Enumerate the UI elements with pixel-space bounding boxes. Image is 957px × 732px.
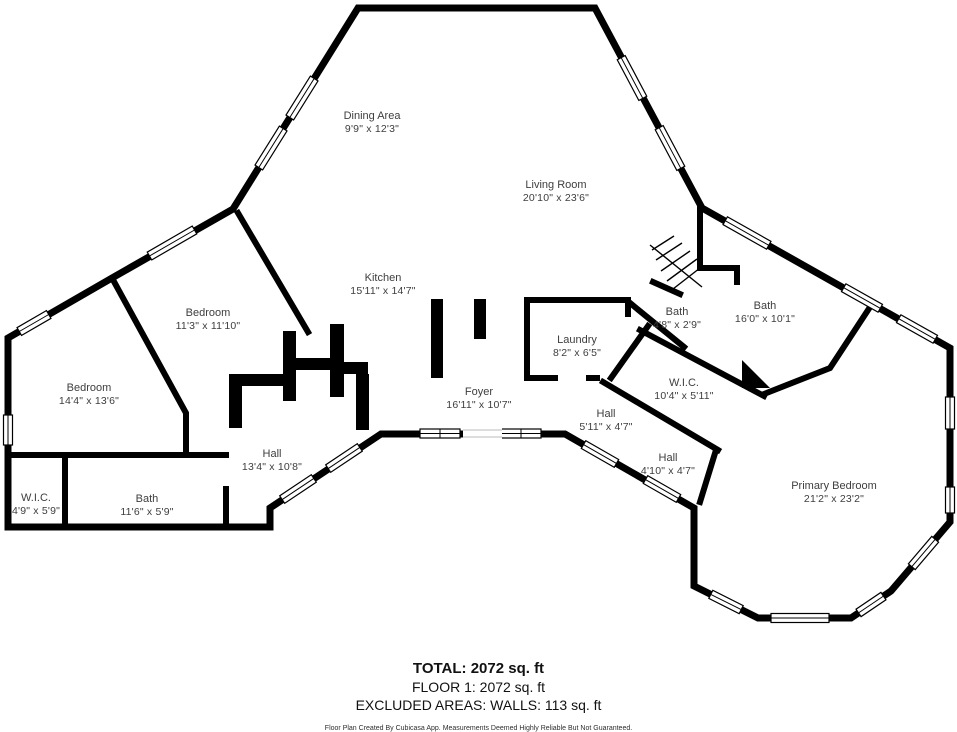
window-symbol xyxy=(581,441,618,468)
window-symbol xyxy=(501,429,541,438)
window-symbol xyxy=(946,397,955,429)
window-symbol xyxy=(655,126,685,171)
window-symbol xyxy=(4,415,13,445)
window-symbol xyxy=(643,476,680,503)
window-symbol xyxy=(856,592,886,616)
window-symbol xyxy=(420,429,460,438)
window-symbol xyxy=(709,590,743,613)
window-symbol xyxy=(771,614,829,623)
window-symbol xyxy=(841,284,882,312)
door-opening xyxy=(220,458,232,486)
kitchen-cabinets xyxy=(229,324,369,430)
window-symbol xyxy=(326,444,363,473)
door-opening xyxy=(558,372,586,384)
window-symbol xyxy=(286,76,318,120)
window-symbol xyxy=(617,56,647,101)
disclaimer-text: Floor Plan Created By Cubicasa App. Meas… xyxy=(0,725,957,732)
window-symbol xyxy=(147,226,197,260)
floor-area-text: FLOOR 1: 2072 sq. ft xyxy=(0,679,957,695)
window-symbol xyxy=(896,315,937,343)
window-symbol xyxy=(908,536,938,569)
foyer-wall-stubs xyxy=(431,299,486,378)
excluded-area-text: EXCLUDED AREAS: WALLS: 113 sq. ft xyxy=(0,697,957,713)
window-symbol xyxy=(280,475,317,504)
total-area-text: TOTAL: 2072 sq. ft xyxy=(0,660,957,677)
window-symbol xyxy=(946,487,955,513)
front-door-opening xyxy=(463,427,502,440)
window-symbol xyxy=(17,311,51,336)
floor-plan-page: Dining Area 9'9" x 12'3" Living Room 20'… xyxy=(0,0,957,732)
wall-wedge xyxy=(742,360,770,388)
area-summary: TOTAL: 2072 sq. ft FLOOR 1: 2072 sq. ft … xyxy=(0,660,957,713)
window-symbol xyxy=(723,217,771,249)
window-symbol xyxy=(255,126,287,170)
floor-plan-drawing xyxy=(0,0,957,732)
